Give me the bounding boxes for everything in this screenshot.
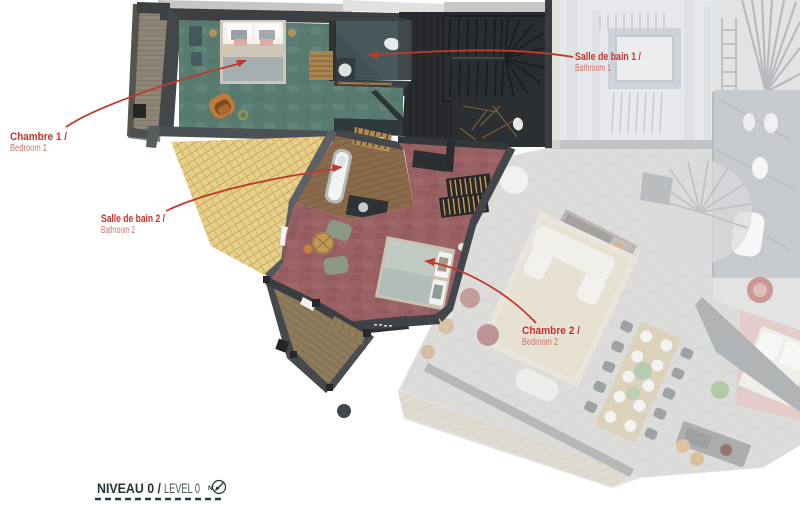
svg-text:Salle de bain 1 /: Salle de bain 1 / bbox=[575, 51, 641, 63]
svg-text:Chambre 2 /: Chambre 2 / bbox=[522, 325, 580, 337]
svg-text:Bedroom 1: Bedroom 1 bbox=[10, 143, 47, 154]
svg-text:LEVEL 0: LEVEL 0 bbox=[164, 481, 200, 496]
svg-text:NIVEAU 0 /: NIVEAU 0 / bbox=[97, 480, 161, 496]
svg-text:Bedroom 2: Bedroom 2 bbox=[522, 337, 558, 348]
svg-text:Chambre 1 /: Chambre 1 / bbox=[10, 131, 67, 143]
svg-text:Bathroom 2: Bathroom 2 bbox=[101, 225, 135, 236]
svg-text:Bathroom 1: Bathroom 1 bbox=[575, 63, 611, 74]
svg-text:Salle de bain 2 /: Salle de bain 2 / bbox=[101, 213, 165, 225]
